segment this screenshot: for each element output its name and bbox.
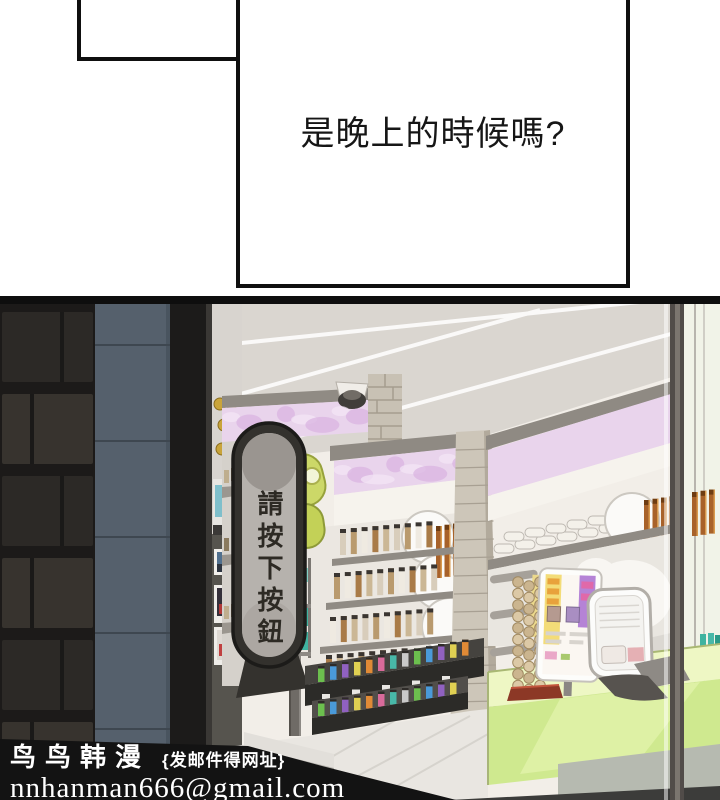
wall-panel-column	[95, 304, 170, 800]
speech-bubble-text: 是晚上的時候嗎?	[236, 112, 630, 156]
door-column	[170, 304, 212, 800]
speech-bubble-step	[77, 0, 236, 61]
watermark-note: {发邮件得网址}	[162, 746, 285, 771]
vertical-sign-text: 請按下按鈕	[250, 482, 288, 658]
store-panel	[0, 296, 720, 800]
watermark: 鸟鸟韩漫 {发邮件得网址} nnhanman666@gmail.com	[10, 737, 480, 800]
security-camera	[336, 382, 368, 409]
watermark-email: nnhanman666@gmail.com	[10, 774, 480, 800]
brick-wall	[0, 304, 95, 800]
glass-door-frame	[664, 304, 684, 800]
comic-page: 是晚上的時候嗎?	[0, 0, 720, 800]
watermark-brand: 鸟鸟韩漫	[10, 737, 150, 774]
